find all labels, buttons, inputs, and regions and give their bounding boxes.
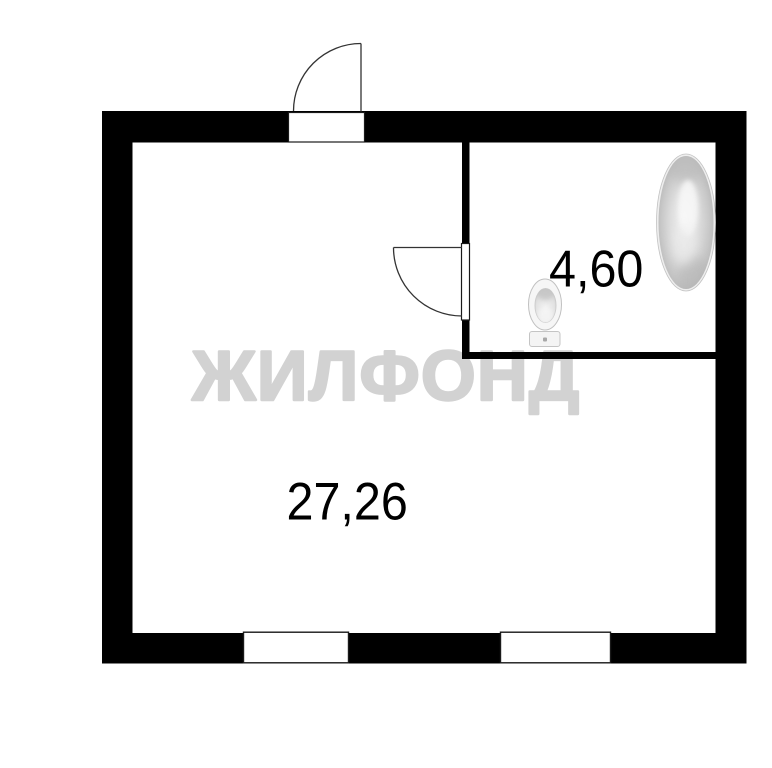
svg-text:27,26: 27,26: [287, 472, 408, 531]
svg-text:ЖИЛФОНД: ЖИЛФОНД: [191, 336, 580, 415]
svg-text:4,60: 4,60: [549, 239, 643, 298]
